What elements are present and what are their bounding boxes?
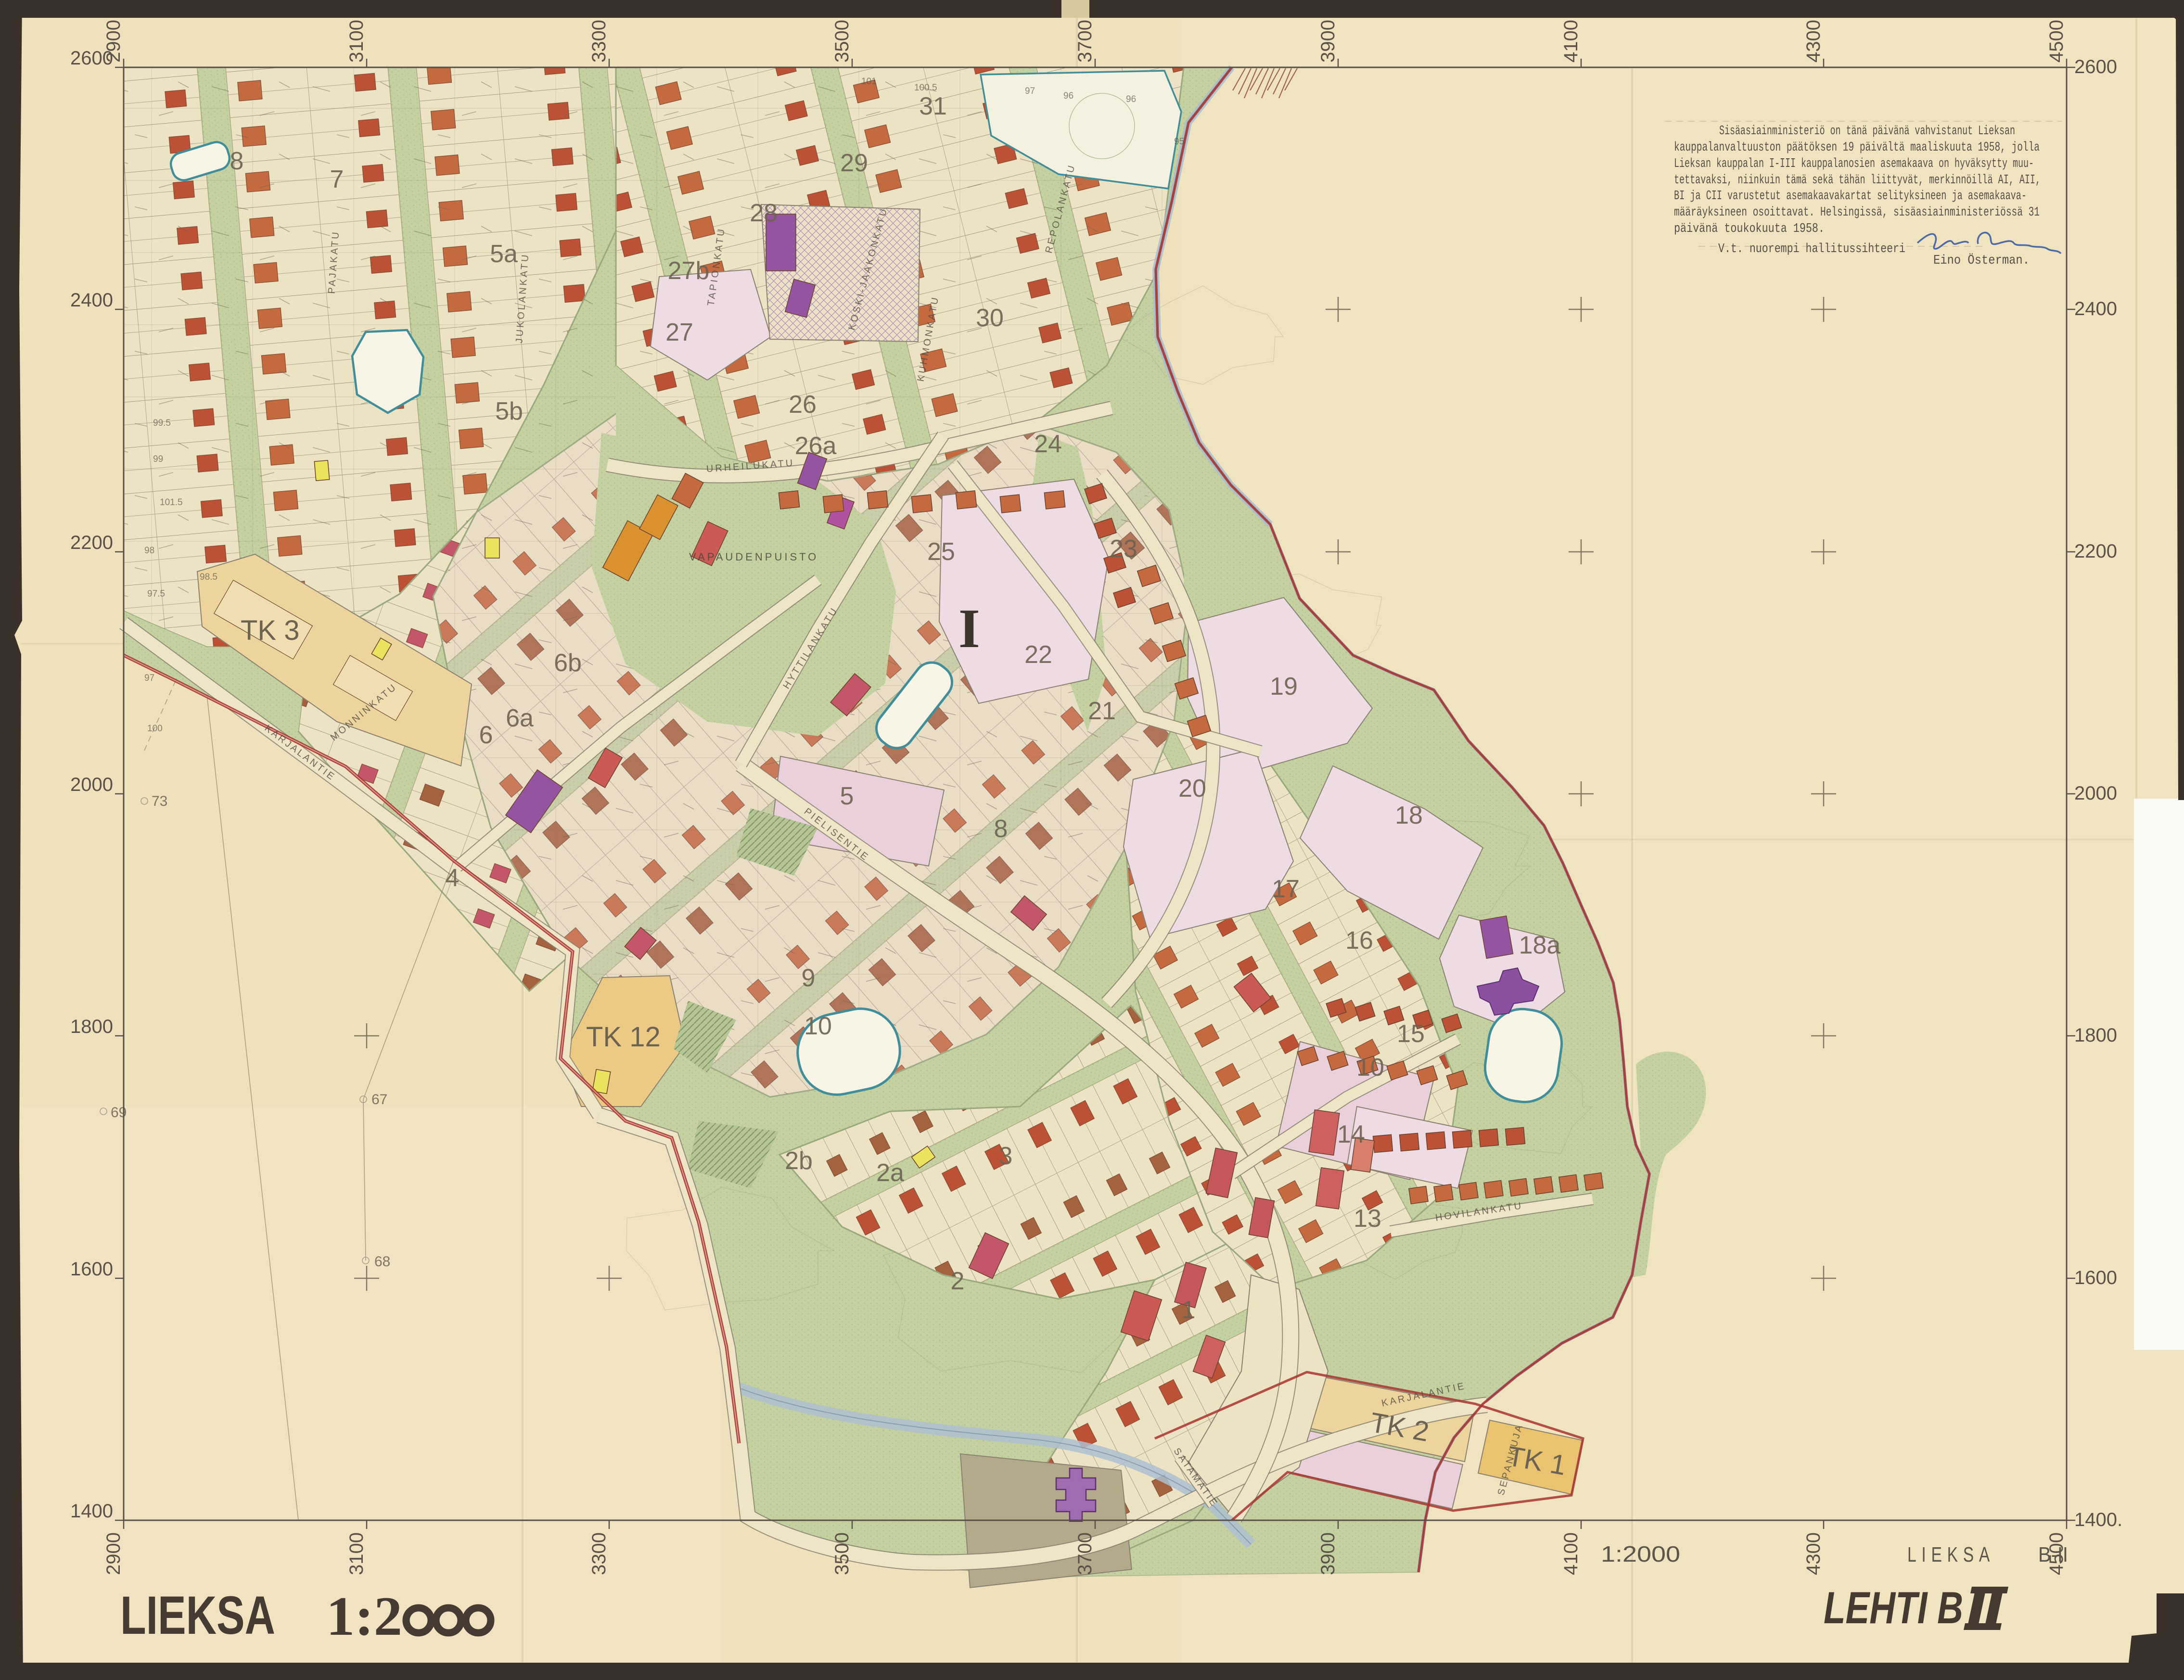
svg-text:tettavaksi, niinkuin tämä sekä: tettavaksi, niinkuin tämä sekä tähän lii… bbox=[1674, 173, 2041, 188]
svg-text:73: 73 bbox=[152, 793, 167, 809]
svg-text:2200: 2200 bbox=[70, 532, 113, 553]
svg-text:24: 24 bbox=[1034, 430, 1062, 458]
svg-text:15: 15 bbox=[1397, 1020, 1425, 1048]
svg-text:LEHTI B: LEHTI B bbox=[1824, 1582, 1963, 1633]
svg-text:21: 21 bbox=[1088, 697, 1116, 725]
svg-text:96: 96 bbox=[1063, 91, 1073, 101]
svg-text:99: 99 bbox=[153, 454, 163, 464]
svg-text:3300: 3300 bbox=[588, 20, 610, 63]
svg-text:2000: 2000 bbox=[2074, 783, 2117, 804]
svg-text:1400: 1400 bbox=[70, 1501, 113, 1522]
svg-text:5: 5 bbox=[840, 782, 854, 810]
svg-text:2200: 2200 bbox=[2074, 541, 2117, 562]
svg-text:3700: 3700 bbox=[1074, 1532, 1096, 1575]
svg-text:101.5: 101.5 bbox=[160, 497, 183, 508]
svg-text:Lieksan kauppalan I-III kauppa: Lieksan kauppalan I-III kauppalanosien a… bbox=[1674, 157, 2034, 171]
svg-text:2: 2 bbox=[951, 1267, 965, 1295]
svg-text:3900: 3900 bbox=[1317, 20, 1339, 63]
svg-text:4300: 4300 bbox=[1803, 20, 1824, 63]
svg-text:29: 29 bbox=[840, 149, 868, 177]
svg-text:I: I bbox=[958, 598, 980, 659]
svg-text:VAPAUDENPUISTO: VAPAUDENPUISTO bbox=[689, 551, 818, 563]
svg-text:23: 23 bbox=[1110, 535, 1137, 563]
svg-text:2400: 2400 bbox=[2074, 298, 2117, 319]
svg-text:4: 4 bbox=[446, 864, 460, 892]
svg-text:6: 6 bbox=[479, 721, 493, 749]
svg-text:4100: 4100 bbox=[1560, 1532, 1582, 1575]
svg-text:4500: 4500 bbox=[2046, 20, 2067, 63]
svg-text:26a: 26a bbox=[795, 432, 837, 460]
svg-text:100: 100 bbox=[147, 724, 163, 734]
svg-text:2900: 2900 bbox=[103, 1532, 124, 1575]
svg-text:3500: 3500 bbox=[831, 1532, 853, 1575]
svg-text:98: 98 bbox=[144, 546, 154, 556]
svg-text:27: 27 bbox=[665, 318, 693, 346]
svg-text:18a: 18a bbox=[1519, 931, 1561, 959]
svg-text:1600: 1600 bbox=[70, 1259, 113, 1280]
svg-text:määräyksineen osoittavat. Hels: määräyksineen osoittavat. Helsingissä, s… bbox=[1674, 205, 2040, 220]
svg-text:8: 8 bbox=[230, 147, 244, 175]
svg-text:96: 96 bbox=[1126, 94, 1136, 104]
svg-text:TK 3: TK 3 bbox=[241, 615, 300, 646]
svg-text:6b: 6b bbox=[554, 649, 582, 677]
svg-text:2600: 2600 bbox=[2074, 56, 2117, 77]
svg-text:30: 30 bbox=[976, 304, 1004, 332]
svg-text:31: 31 bbox=[919, 92, 947, 120]
svg-text:päivänä toukokuuta 1958.: päivänä toukokuuta 1958. bbox=[1674, 222, 1825, 236]
svg-text:1600: 1600 bbox=[2074, 1267, 2117, 1288]
svg-text:9: 9 bbox=[802, 964, 816, 992]
svg-text:LIEKSA: LIEKSA bbox=[120, 1585, 275, 1645]
svg-text:22: 22 bbox=[1024, 641, 1052, 669]
svg-text:99.5: 99.5 bbox=[153, 418, 171, 428]
svg-text:1:2000: 1:2000 bbox=[1601, 1541, 1680, 1566]
svg-text:6a: 6a bbox=[506, 704, 534, 732]
svg-text:26: 26 bbox=[789, 391, 817, 419]
svg-text:2600: 2600 bbox=[70, 48, 113, 69]
svg-text:3700: 3700 bbox=[1074, 20, 1096, 63]
svg-text:97.5: 97.5 bbox=[147, 589, 165, 599]
svg-text:1800: 1800 bbox=[70, 1016, 113, 1037]
svg-text:98.5: 98.5 bbox=[200, 572, 217, 582]
svg-text:20: 20 bbox=[1178, 775, 1206, 802]
svg-text:67: 67 bbox=[371, 1092, 387, 1107]
svg-text:4300: 4300 bbox=[1803, 1532, 1824, 1575]
svg-text:68: 68 bbox=[374, 1254, 390, 1270]
svg-text:V.t. nuorempi hallitussihteeri: V.t. nuorempi hallitussihteeri bbox=[1718, 242, 1905, 256]
svg-text:27b: 27b bbox=[668, 257, 710, 285]
svg-text:2b: 2b bbox=[785, 1147, 813, 1175]
svg-text:14: 14 bbox=[1337, 1120, 1365, 1148]
svg-text:kauppalanvaltuuston päätöksen: kauppalanvaltuuston päätöksen 19 päivält… bbox=[1674, 140, 2040, 155]
svg-text:Eino Österman.: Eino Österman. bbox=[1933, 253, 2030, 268]
svg-text:25: 25 bbox=[927, 538, 955, 566]
svg-text:2400: 2400 bbox=[70, 290, 113, 311]
svg-text:19: 19 bbox=[1270, 673, 1298, 700]
svg-text:3900: 3900 bbox=[1317, 1532, 1339, 1575]
svg-text:4100: 4100 bbox=[1560, 20, 1582, 63]
svg-text:16: 16 bbox=[1345, 927, 1373, 955]
svg-text:18: 18 bbox=[1395, 802, 1423, 829]
svg-text:3300: 3300 bbox=[588, 1532, 610, 1575]
svg-text:2a: 2a bbox=[876, 1159, 904, 1187]
svg-text:97: 97 bbox=[144, 673, 154, 683]
svg-text:1:2: 1:2 bbox=[326, 1586, 402, 1647]
svg-text:1400.: 1400. bbox=[2074, 1509, 2122, 1530]
svg-text:95: 95 bbox=[1174, 137, 1184, 147]
svg-text:2000: 2000 bbox=[70, 774, 113, 795]
svg-text:1800: 1800 bbox=[2074, 1025, 2117, 1046]
svg-text:100.5: 100.5 bbox=[914, 83, 937, 93]
svg-text:5a: 5a bbox=[490, 240, 518, 268]
svg-text:3100: 3100 bbox=[346, 1532, 367, 1575]
svg-text:5b: 5b bbox=[495, 397, 523, 425]
svg-text:TK 12: TK 12 bbox=[586, 1021, 661, 1053]
svg-text:97: 97 bbox=[1025, 86, 1035, 96]
svg-text:Sisäasiainministeriö on tänä p: Sisäasiainministeriö on tänä päivänä vah… bbox=[1719, 124, 2015, 139]
svg-text:7: 7 bbox=[330, 165, 344, 193]
svg-text:10: 10 bbox=[804, 1012, 832, 1040]
svg-text:BI ja CII varustetut asemakaav: BI ja CII varustetut asemakaavakartat se… bbox=[1674, 189, 2027, 204]
svg-text:28: 28 bbox=[750, 199, 778, 227]
svg-text:13: 13 bbox=[1354, 1205, 1381, 1233]
svg-text:10: 10 bbox=[1356, 1054, 1384, 1082]
svg-text:3100: 3100 bbox=[346, 20, 367, 63]
svg-text:3: 3 bbox=[999, 1142, 1013, 1170]
svg-text:101: 101 bbox=[861, 76, 877, 87]
svg-text:17: 17 bbox=[1272, 875, 1300, 903]
svg-text:B-II: B-II bbox=[2038, 1543, 2068, 1566]
svg-text:3500: 3500 bbox=[831, 20, 853, 63]
svg-text:8: 8 bbox=[994, 815, 1008, 843]
svg-text:LIEKSA: LIEKSA bbox=[1907, 1543, 1995, 1566]
svg-text:1: 1 bbox=[1182, 1296, 1196, 1324]
